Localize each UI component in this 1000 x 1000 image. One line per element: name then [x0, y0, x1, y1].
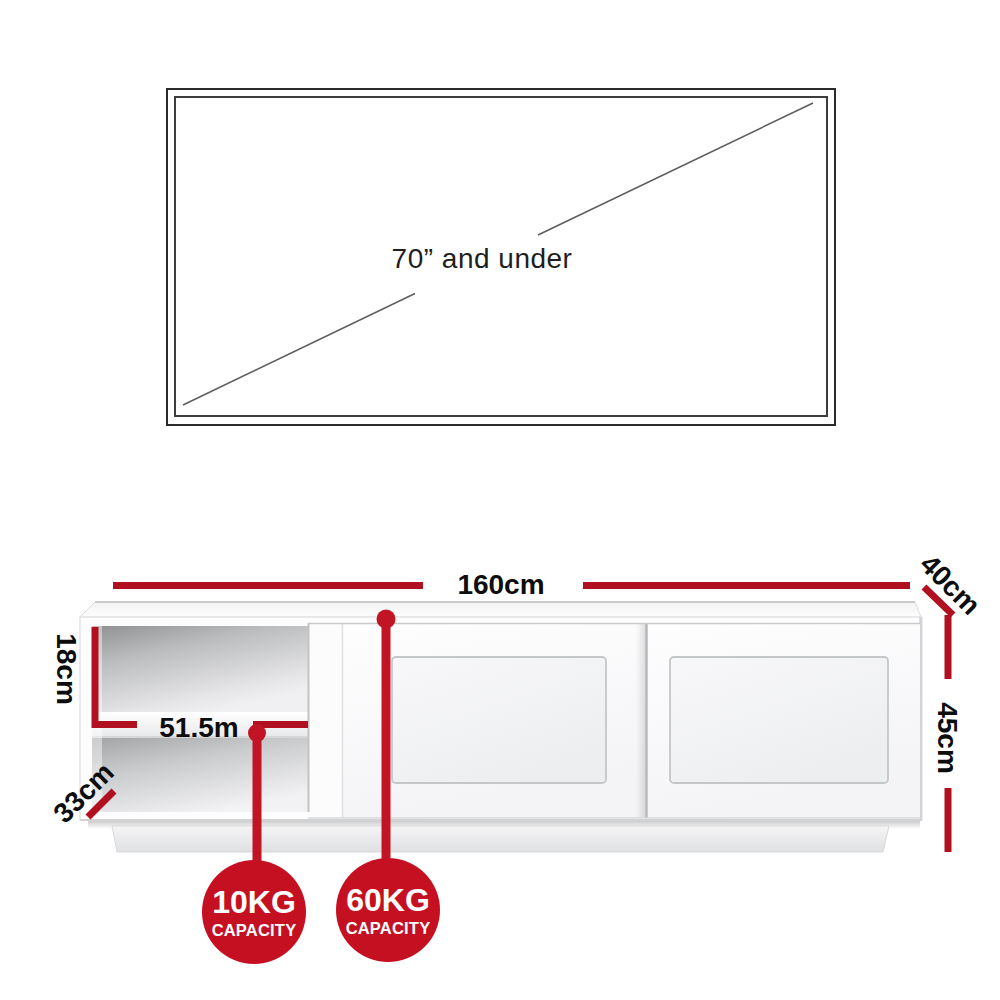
- badge-60kg-capacity: 60KG CAPACITY: [336, 858, 440, 962]
- tv-cabinet-size-infographic: 70” and under: [0, 0, 1000, 1000]
- cabinet-top-face: [80, 602, 921, 617]
- height-dim-line-top: [945, 615, 952, 679]
- badge-10kg-capacity-label: CAPACITY: [212, 922, 297, 939]
- width-dim-line-left: [113, 582, 423, 589]
- height-dim-label: 45cm: [932, 693, 962, 783]
- door-panel-right: [670, 657, 888, 783]
- cabinet-graphic: [0, 0, 1000, 1000]
- open-compartment-bottom: [92, 738, 308, 812]
- width-dim-label: 160cm: [441, 570, 561, 600]
- width-dim-line-right: [583, 582, 910, 589]
- badge-10kg-capacity: 10KG CAPACITY: [202, 860, 306, 964]
- plinth-base: [112, 826, 889, 852]
- badge-60kg-weight-label: 60KG: [346, 884, 430, 916]
- leader-line-10kg: [253, 733, 262, 864]
- shelf-width-dim-label: 51.5m: [149, 713, 249, 743]
- door-gap-shadow: [636, 623, 646, 818]
- compartment-height-dim-label: 18cm: [51, 624, 81, 714]
- leader-dot-shelf: [248, 724, 266, 742]
- badge-10kg-weight-label: 10KG: [212, 886, 296, 918]
- badge-60kg-capacity-label: CAPACITY: [346, 920, 431, 937]
- divider-panel: [308, 623, 342, 818]
- leader-line-60kg: [382, 619, 391, 864]
- height-dim-line-bottom: [945, 788, 952, 852]
- leader-dot-top: [377, 610, 396, 629]
- open-compartment-top: [92, 626, 308, 712]
- door-panel-left: [392, 657, 606, 783]
